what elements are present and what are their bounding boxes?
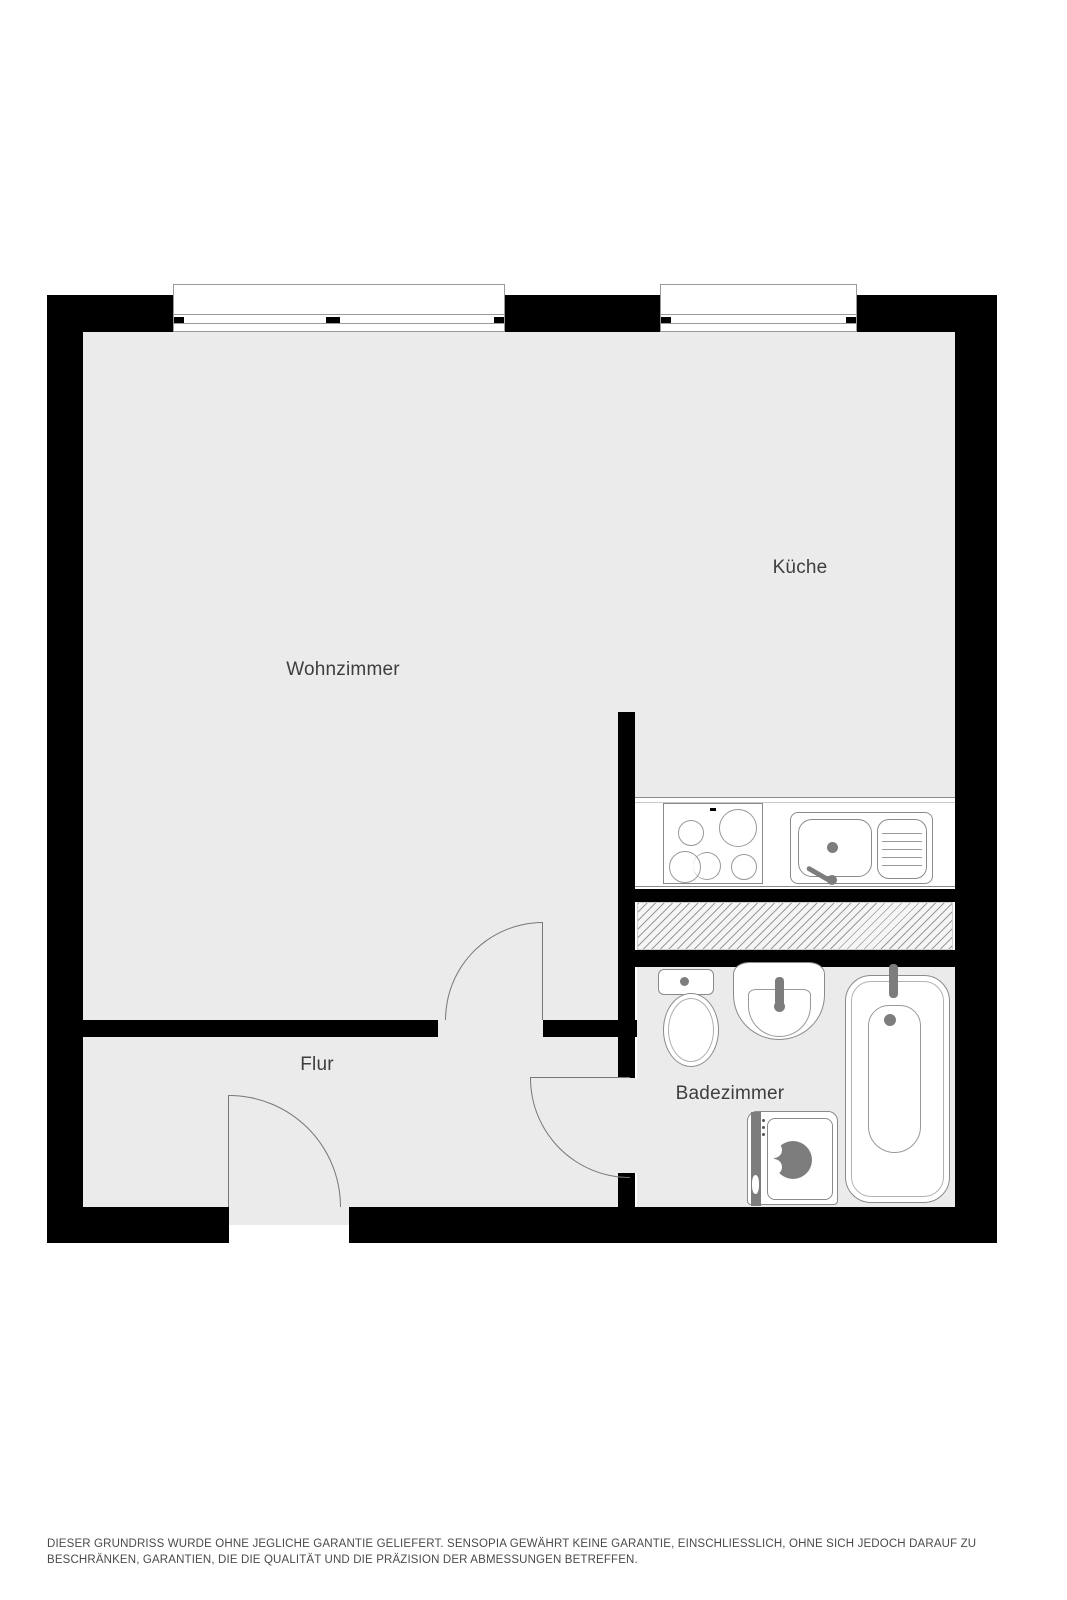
toilet-bowl-inner xyxy=(668,998,714,1062)
bathtub-drain-dot xyxy=(884,1014,896,1026)
wall-top-middle xyxy=(505,295,660,332)
floor-plan: Wohnzimmer Küche Flur Badezimmer xyxy=(0,0,1067,1600)
entry-door-gap-floor xyxy=(229,1207,349,1225)
room-label-bath: Badezimmer xyxy=(676,1083,785,1105)
sink-drainboard xyxy=(877,819,927,879)
toilet-flush-dot xyxy=(680,977,689,986)
wall-left xyxy=(47,295,83,1243)
wall-hall-north-a xyxy=(83,1020,438,1037)
window-glass-line xyxy=(661,314,856,315)
window-jamb-tick xyxy=(494,317,504,323)
wall-under-counter xyxy=(618,889,955,902)
kitchen-sink xyxy=(790,812,933,884)
sink-faucet-pivot xyxy=(827,875,837,885)
drainboard-ribs xyxy=(882,826,922,872)
living-door-gap-floor xyxy=(438,1020,543,1037)
sink-drain-dot xyxy=(827,842,838,853)
washing-machine-button xyxy=(762,1126,765,1129)
room-opening-floor xyxy=(618,331,635,712)
toilet-bowl xyxy=(663,993,719,1067)
bathtub xyxy=(845,975,950,1203)
room-label-hall: Flur xyxy=(300,1054,334,1076)
washing-machine-door-frame xyxy=(767,1118,833,1200)
washing-machine-button xyxy=(762,1119,765,1122)
window-glass-line xyxy=(661,323,856,324)
toilet-tank xyxy=(658,969,714,995)
washbasin-faucet-dot xyxy=(774,1001,785,1012)
window-mullion-tick xyxy=(326,317,340,323)
room-label-living: Wohnzimmer xyxy=(286,659,400,681)
burner-extension-bottom xyxy=(693,852,721,880)
window-jamb-tick xyxy=(174,317,184,323)
washing-machine-button xyxy=(762,1133,765,1136)
burner-small-top-left xyxy=(678,820,704,846)
window-glass-line xyxy=(174,323,504,324)
stove-cooktop xyxy=(663,803,763,884)
wall-bottom-left xyxy=(47,1207,229,1243)
washing-machine xyxy=(747,1111,838,1205)
wall-bottom-right xyxy=(349,1207,997,1243)
bathtub-faucet xyxy=(889,964,898,998)
burner-small-bottom-right xyxy=(731,854,757,880)
window-glass-line xyxy=(174,314,504,315)
wall-right xyxy=(955,295,997,1243)
burner-large-top-right xyxy=(719,809,757,847)
bathtub-basin xyxy=(868,1005,921,1153)
room-label-kitchen: Küche xyxy=(773,557,828,579)
window-jamb-tick xyxy=(661,317,671,323)
wall-divider-lower xyxy=(618,1173,635,1213)
washing-machine-slot xyxy=(752,1175,759,1194)
disclaimer-text: DIESER GRUNDRISS WURDE OHNE JEGLICHE GAR… xyxy=(47,1536,1039,1569)
stove-indicator xyxy=(710,808,716,811)
hall-floor xyxy=(83,1037,618,1207)
window-jamb-tick xyxy=(846,317,856,323)
shaft-hatch xyxy=(637,902,953,950)
window-kitchen xyxy=(660,284,857,332)
window-living xyxy=(173,284,505,332)
